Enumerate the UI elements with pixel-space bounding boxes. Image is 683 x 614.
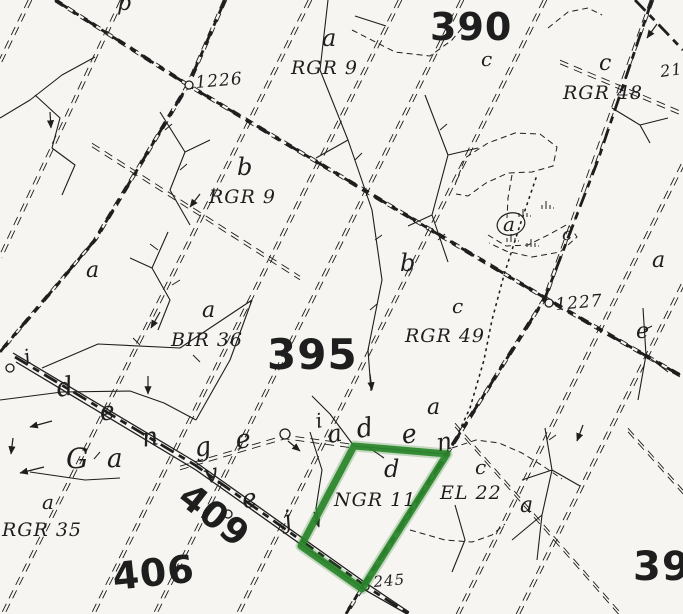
stand-label: EL 22 (439, 482, 502, 504)
stand-label: RGR 48 (562, 82, 643, 104)
dotted-trail (456, 178, 536, 438)
map-canvas: RGR 9RGR 48RGR 9BIR 36RGR 49RGR 35NGR 11… (0, 0, 683, 614)
corridor-line (0, 0, 223, 352)
corridor-line (2, 0, 124, 258)
road-name-letter: d (354, 412, 377, 445)
subcompartment-letter: a (520, 493, 534, 518)
stand-label: RGR 49 (404, 325, 485, 347)
subcompartment-letter: a (322, 24, 337, 52)
ditch-line (0, 57, 95, 118)
ditch-line (612, 108, 668, 125)
compartment-number: 395 (267, 330, 358, 379)
corridor-line (628, 432, 683, 494)
corridor-line (236, 0, 543, 614)
flow-arrow (11, 438, 13, 454)
ditch-line (522, 470, 552, 480)
subcompartment-letter: b (400, 249, 416, 277)
dashed-boundary (455, 133, 557, 196)
subcompartment-letter: e (636, 319, 650, 344)
ditch-line (160, 112, 190, 225)
point-marker (545, 299, 553, 307)
subcompartment-letter: a (42, 490, 55, 514)
corridor-line (92, 147, 300, 280)
ditch-tick (440, 124, 447, 130)
compartment-number: 396 (633, 544, 683, 590)
stand-label: NGR 11 (333, 489, 416, 511)
ditch-line (448, 148, 478, 155)
ditch-line (452, 505, 465, 572)
subcompartment-letter: a (652, 248, 666, 273)
dashed-boundary (452, 440, 562, 479)
ditch-line (640, 125, 650, 143)
stand-label: BIR 36 (170, 329, 243, 351)
compartment-number: 390 (430, 5, 512, 49)
stand-label: RGR 9 (290, 57, 358, 79)
corridor-line (2, 0, 32, 62)
flow-arrow (647, 24, 657, 38)
road-name-letter: a (107, 444, 124, 474)
heavy-road (0, 0, 225, 352)
heavy-road (55, 0, 683, 377)
road-name-letter: d (54, 371, 77, 404)
road-name-letter: i (21, 344, 34, 369)
subcompartment-letter: c (452, 294, 464, 318)
subcompartment-letter: c (475, 455, 487, 479)
subcompartment-letter: d (384, 455, 400, 483)
dashed-boundary (410, 524, 505, 542)
road-name-letter: e (233, 424, 254, 456)
point-number: 1226 (195, 69, 244, 93)
forest-map: RGR 9RGR 48RGR 9BIR 36RGR 49RGR 35NGR 11… (0, 0, 683, 614)
corridor-line (0, 0, 28, 62)
road-name-letter: n (434, 426, 455, 456)
subcompartment-letter: b (237, 153, 253, 181)
point-number: 1227 (555, 291, 604, 315)
point-number: 245 (372, 570, 406, 591)
ditch-tick (172, 280, 180, 285)
ditch-line (512, 515, 542, 540)
ditch-tick (150, 244, 158, 250)
point-number: 212 (658, 57, 683, 81)
compartment-number: 406 (110, 547, 196, 599)
ditch-line (552, 470, 580, 486)
corridor-line (92, 143, 300, 276)
ditch-tick (180, 164, 187, 170)
flow-arrow (577, 425, 583, 441)
corridor-line (0, 0, 120, 258)
subcompartment-letter: p (117, 0, 132, 16)
flow-arrow (151, 312, 160, 328)
ditch-tick (193, 355, 200, 362)
corridor-line (2, 0, 227, 352)
ditch-line (185, 140, 210, 152)
ditch-tick (94, 452, 100, 459)
subcompartment-letter: a (202, 298, 216, 323)
road-name-letter: n (139, 421, 162, 454)
flow-arrow (288, 441, 300, 451)
marsh-tuft (542, 201, 554, 209)
subcompartment-letter: c (481, 47, 493, 71)
subcompartment-letter: c (562, 224, 573, 245)
stand-label: RGR 35 (1, 519, 82, 541)
ditch-line (35, 95, 75, 195)
point-marker (185, 81, 193, 89)
ditch-tick (355, 153, 362, 160)
ditch-line (408, 215, 432, 226)
point-marker (280, 429, 290, 439)
ditch-line (355, 16, 386, 26)
corridor-line (628, 428, 683, 490)
road-name-letter: j (275, 505, 295, 536)
ditch-line (130, 258, 152, 268)
dashed-boundary (548, 8, 602, 28)
ditch-line (316, 140, 348, 158)
subcompartment-letter: a (427, 395, 441, 420)
ditch-tick (549, 435, 556, 440)
flow-arrow (190, 194, 200, 207)
subcompartment-letter: a (86, 258, 100, 283)
point-marker (6, 364, 14, 372)
subcompartment-letter: a (503, 212, 516, 236)
ditch-line (152, 232, 170, 330)
stand-label: RGR 9 (208, 186, 276, 208)
flow-arrow (30, 421, 52, 427)
subcompartment-letter: c (599, 51, 612, 76)
flow-arrow (50, 112, 51, 128)
road-name-letter: G (66, 442, 89, 475)
road-name-letter: i (314, 408, 325, 433)
